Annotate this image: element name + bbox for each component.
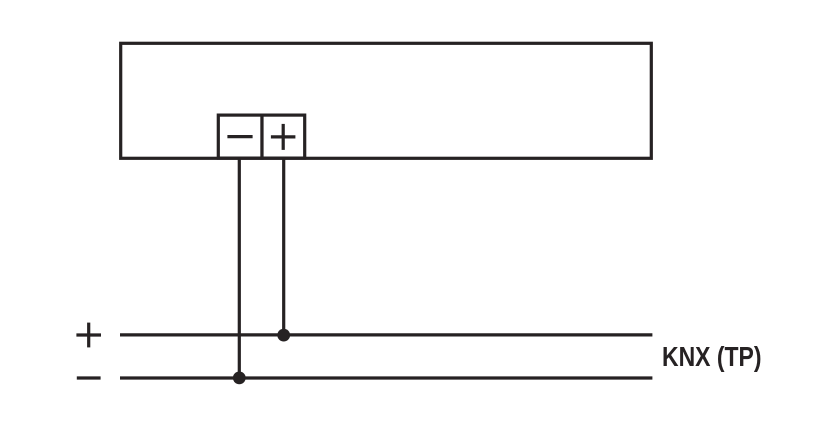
svg-text:KNX (TP): KNX (TP) bbox=[662, 341, 762, 372]
